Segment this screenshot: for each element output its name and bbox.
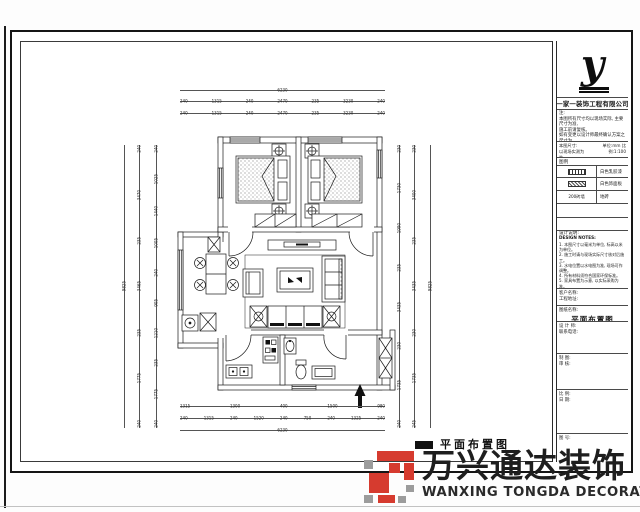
door-kitchen <box>226 335 251 361</box>
dim-or-note-label: 245 <box>413 420 417 428</box>
dim-or-note-label: 235 <box>413 237 417 245</box>
dim-or-note-label: 240 <box>138 420 142 428</box>
title-block-notes: 注: 本图所有尺寸均以现场实际, 主要尺寸为准,施工前请复核。 如有变更以设计师… <box>557 110 628 142</box>
dim-bottom-row1: 131513004001500980 <box>180 406 385 411</box>
dim-or-note-label: 1315 <box>212 112 222 116</box>
dim-or-note-label: 1005 <box>155 238 159 248</box>
dim-or-note-label: 235 <box>155 359 159 367</box>
dim-or-note-label: 2470 <box>277 112 287 116</box>
dim-or-note-label: 2470 <box>277 100 287 104</box>
dining-table <box>206 254 226 294</box>
dim-or-note-label: 905 <box>155 299 159 307</box>
dim-or-note-label: 240 <box>246 100 254 104</box>
info-right: 单位:mm 比例:1:100 <box>588 143 626 156</box>
dim-or-note-label: 240 <box>398 420 402 428</box>
dim-or-note-label: 1440 <box>155 206 159 216</box>
dim-or-note-label: 240 <box>327 417 335 421</box>
dim-or-note-label: 230 <box>398 342 402 350</box>
legend-row-2: 白色饰面板 <box>557 178 628 191</box>
info-left: 本图尺寸:以现场实测为准. <box>559 143 588 156</box>
dim-or-note-label: 1520 <box>254 417 264 421</box>
dim-or-note-label: 230 <box>413 329 417 337</box>
dim-or-note-label: 1315 <box>180 405 190 409</box>
dim-left-overall: 9825 <box>124 145 130 428</box>
toilet <box>296 360 306 379</box>
balcony-cabinet <box>200 313 216 331</box>
dim-or-note-label: 3230 <box>343 100 353 104</box>
dim-or-note-label: 240 <box>377 417 385 421</box>
dim-or-note-label: 1775 <box>138 373 142 383</box>
dim-or-note-label: 240 <box>155 269 159 277</box>
empty-row <box>557 204 628 218</box>
dim-or-note-label: 3230 <box>343 112 353 116</box>
watermark-english-text: WANXING TONGDA DECORATION <box>422 485 640 500</box>
dim-or-note-label: 3435 <box>398 302 402 312</box>
dim-or-note-label: 1990 <box>398 223 402 233</box>
dim-or-note-label: 240 <box>180 100 188 104</box>
wardrobe-left <box>255 214 296 227</box>
legend-label-3: 地砖 <box>597 194 628 200</box>
dim-or-note-label: 230 <box>398 145 402 153</box>
title-block: y 一家一装饰工程有限公司 注: 本图所有尺寸均以现场实际, 主要尺寸为准,施工… <box>552 41 627 462</box>
company-logo: y <box>557 41 628 98</box>
dim-or-note-label: 240 <box>280 417 288 421</box>
company-logo-letter: y <box>581 49 604 81</box>
design-notes-lines: 1. 本图尺寸以毫米为单位, 标高以米为单位。2. 施工时请与现场实际尺寸核对后… <box>557 241 628 289</box>
dim-top-overall: 6230 <box>180 90 385 95</box>
dim-or-note-label: 1. 本图尺寸以毫米为单位, 标高以米为单位。 <box>559 242 626 252</box>
dim-or-note-label: 1775 <box>155 389 159 399</box>
dim-or-note-label: 235 <box>138 329 142 337</box>
dim-or-note-label: 2. 施工时请与现场实际尺寸核对后施工。 <box>559 252 626 262</box>
dim-left-inner: 24010251440100524090512102351775240 <box>156 145 162 428</box>
legend-title: 图例 <box>557 158 628 166</box>
dim-right-outer: 230340023534352301735245 <box>414 145 420 428</box>
watermark: 万兴通达装饰 WANXING TONGDA DECORATION <box>364 449 640 505</box>
dim-or-note-label: 1025 <box>155 174 159 184</box>
dim-or-note-label: 3470 <box>138 190 142 200</box>
dim-or-note-label: 1735 <box>398 380 402 390</box>
coffee-table <box>277 268 313 292</box>
bed-left <box>236 156 290 203</box>
dim-or-note-label: 1315 <box>204 417 214 421</box>
empty-row <box>557 218 628 231</box>
page-left-edge <box>4 26 6 508</box>
dim-or-note-label: 3435 <box>413 281 417 291</box>
dim-or-note-label: 1300 <box>230 405 240 409</box>
legend-row-1: 白色乳胶漆 <box>557 166 628 178</box>
wanxing-logo-icon <box>364 449 416 505</box>
dim-or-note-label: 235 <box>312 112 320 116</box>
dim-or-note-label: 240 <box>377 100 385 104</box>
armchair-left <box>243 269 263 297</box>
dim-or-note-label: 240 <box>180 417 188 421</box>
title-block-info-row: 本图尺寸:以现场实测为准. 单位:mm 比例:1:100 <box>557 142 628 158</box>
page-bottom-edge <box>0 506 640 507</box>
dim-or-note-label: 3465 <box>138 281 142 291</box>
dim-or-note-label: 1735 <box>413 373 417 383</box>
dim-top-row2: 240131524024702353230240 <box>180 113 385 118</box>
watermark-chinese-text: 万兴通达装饰 <box>422 449 640 484</box>
dim-or-note-label: 1325 <box>351 417 361 421</box>
dim-or-note-label: 235 <box>138 237 142 245</box>
dim-or-note-label: 240 <box>155 145 159 153</box>
dim-or-note-label: 240 <box>377 112 385 116</box>
legend-row-3: 200砖墙 地砖 <box>557 191 628 204</box>
field-scale-date: 比 例:日 期: <box>557 390 628 434</box>
door-bedroom-right <box>349 232 373 256</box>
exterior-shaft <box>379 338 392 378</box>
dim-or-note-label: 230 <box>413 145 417 153</box>
dim-or-note-label: 235 <box>398 264 402 272</box>
tv-cabinet <box>268 240 336 250</box>
dim-or-note-label: 980 <box>377 405 385 409</box>
legend-swatch-panel-icon <box>568 181 586 187</box>
dim-or-note-label: 3. 水电位置以水电图为准, 现场可作调整。 <box>559 263 626 273</box>
dim-right-overall: 9825 <box>430 145 436 428</box>
bath-basin <box>284 338 296 354</box>
dim-or-note-label: 240 <box>180 112 188 116</box>
sofa-sectional-right <box>322 256 345 302</box>
legend-label-2: 白色饰面板 <box>597 181 628 187</box>
wardrobe-right <box>312 214 362 227</box>
legend-swatch-text: 200砖墙 <box>568 194 584 200</box>
dim-or-note-label: 5. 家具布置为示意, 以实际采购为准。 <box>559 278 626 288</box>
kitchen-sink <box>226 365 252 378</box>
dim-or-note-label: 本图所有尺寸均以现场实际, 主要尺寸为准, <box>559 117 626 128</box>
dim-or-note-label: 1500 <box>327 405 337 409</box>
screenshot-root: 6230 240131524024702353230240 2401315240… <box>0 0 640 512</box>
dim-bottom-overall: 6230 <box>180 430 385 435</box>
dim-left-outer: 240347023534652351775240 <box>139 145 145 428</box>
dim-or-note-label: 240 <box>230 417 238 421</box>
shower-tray <box>312 366 335 379</box>
drawing-name-value: 平面布置图 <box>559 314 626 322</box>
dim-bottom-row2: 240131524015202407502401325240 <box>180 418 385 423</box>
field-client: 客户名称:工程地址: <box>557 289 628 306</box>
dim-or-note-label: 以现场实测为准. <box>559 149 588 158</box>
legend-swatch-paint-icon <box>568 169 586 175</box>
company-name: 一家一装饰工程有限公司 <box>557 98 628 110</box>
dim-or-note-label: 240 <box>155 420 159 428</box>
dim-top-row1: 240131524024702353230240 <box>180 101 385 106</box>
legend-label-1: 白色乳胶漆 <box>597 169 628 175</box>
dim-or-note-label: 如有变更以设计师最终确认方案之尺寸为 <box>559 133 626 142</box>
dim-or-note-label: 1210 <box>155 328 159 338</box>
dining-cabinet <box>208 237 220 252</box>
dim-right-inner: 2301730199023534352301735240 <box>399 145 405 428</box>
washing-machine <box>182 315 198 331</box>
dim-or-note-label: 750 <box>304 417 312 421</box>
dim-or-note-label: 1315 <box>212 100 222 104</box>
design-notes-header: 设计说明: DESIGN NOTES: <box>557 231 628 241</box>
dim-or-note-label: 235 <box>312 100 320 104</box>
dim-or-note-label: 240 <box>246 112 254 116</box>
field-drawing-name: 图纸名称: 平面布置图 <box>557 306 628 322</box>
dim-or-note-label: 1730 <box>398 183 402 193</box>
kitchen-stove <box>263 337 278 363</box>
dim-or-note-label: 3400 <box>413 190 417 200</box>
door-bedroom-left <box>229 232 253 256</box>
door-bathroom <box>324 335 346 359</box>
field-draftsman: 制 图:审 核: <box>557 354 628 390</box>
sofa-three-seat <box>268 306 322 328</box>
dim-or-note-label: 400 <box>280 405 288 409</box>
bed-right <box>308 156 362 203</box>
company-logo-bars <box>579 87 609 93</box>
dim-or-note-label: 240 <box>138 145 142 153</box>
field-designer: 设 计 师:联系电话: <box>557 322 628 354</box>
